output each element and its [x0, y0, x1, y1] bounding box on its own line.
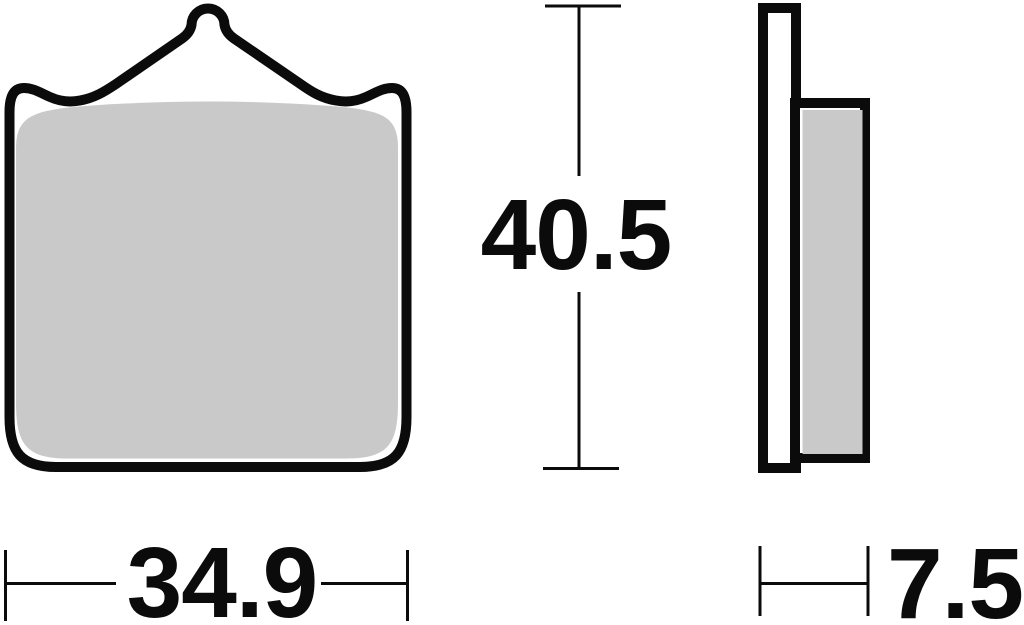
friction-material-front: [16, 102, 398, 459]
dimension-thickness: [760, 546, 868, 616]
drawing-canvas: 34.9 40.5 7.5: [0, 0, 1024, 625]
brake-pad-drawing: 34.9 40.5 7.5: [0, 0, 1024, 625]
height-dim-label: 40.5: [481, 179, 672, 291]
width-dim-label: 34.9: [127, 527, 318, 625]
front-view: [10, 9, 407, 468]
side-view: [763, 8, 865, 468]
thickness-dim-label: 7.5: [887, 528, 1023, 625]
friction-material-side: [803, 110, 863, 454]
